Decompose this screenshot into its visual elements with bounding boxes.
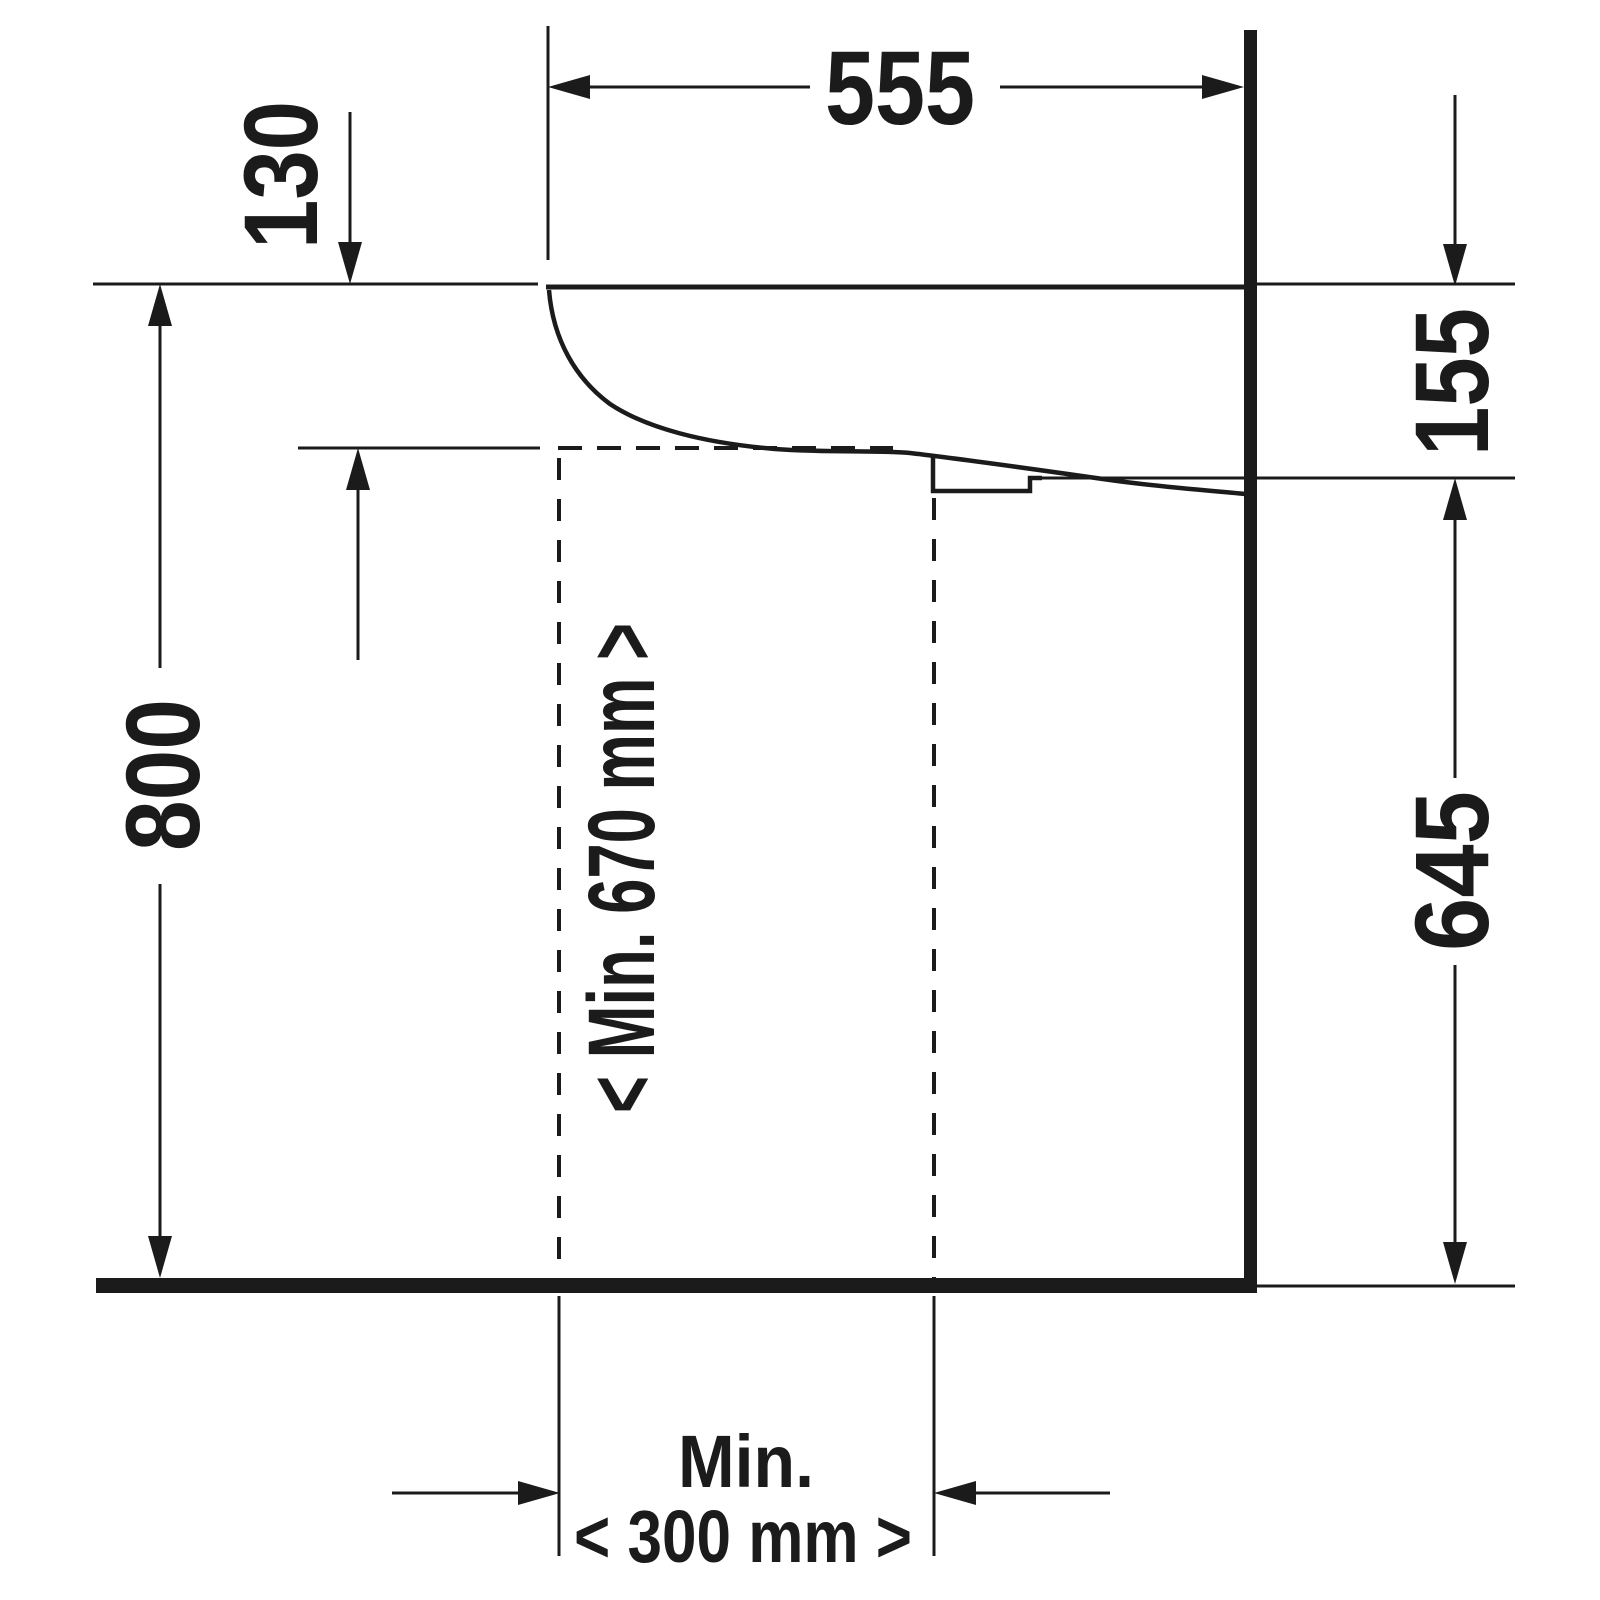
arrowhead-up-icon: [346, 448, 370, 490]
dim-label-min-670-mm: < Min. 670 mm >: [569, 623, 675, 1113]
arrowhead-right-icon: [1202, 75, 1244, 99]
dim-label-155: 155: [1394, 308, 1511, 456]
dimension-555: 555: [548, 30, 1244, 147]
dimension-155: 155: [1394, 95, 1511, 520]
dim-label-130: 130: [223, 101, 340, 249]
dim-label-min: Min.: [678, 1420, 814, 1503]
arrowhead-up-icon: [148, 284, 172, 326]
dim-label-300-mm: < 300 mm >: [574, 1495, 912, 1578]
arrowhead-down-icon: [1443, 1242, 1467, 1284]
dim-label-645: 645: [1394, 791, 1511, 951]
arrowhead-down-icon: [148, 1236, 172, 1278]
dim-label-555: 555: [825, 30, 975, 147]
arrowhead-down-icon: [1443, 244, 1467, 286]
arrowhead-left-icon: [548, 75, 590, 99]
arrowhead-left-icon: [934, 1481, 976, 1505]
dimension-130: 130: [223, 101, 370, 660]
wall-section-line: [1244, 30, 1257, 1293]
washbasin-dimension-drawing: 555 130 800 155 645 < Min. 670 mm >: [0, 0, 1600, 1600]
basin-underside-curve: [549, 290, 1246, 494]
dimension-min-300: Min. < 300 mm >: [392, 1420, 1110, 1578]
dimension-645: 645: [1394, 520, 1511, 1284]
dim-label-800: 800: [105, 699, 222, 851]
dimension-800: 800: [105, 284, 222, 1278]
arrowhead-down-icon: [338, 242, 362, 284]
arrowhead-right-icon: [518, 1481, 560, 1505]
arrowhead-up-icon: [1443, 478, 1467, 520]
drawing-canvas: 555 130 800 155 645 < Min. 670 mm >: [0, 0, 1600, 1600]
floor-line: [96, 1278, 1257, 1293]
